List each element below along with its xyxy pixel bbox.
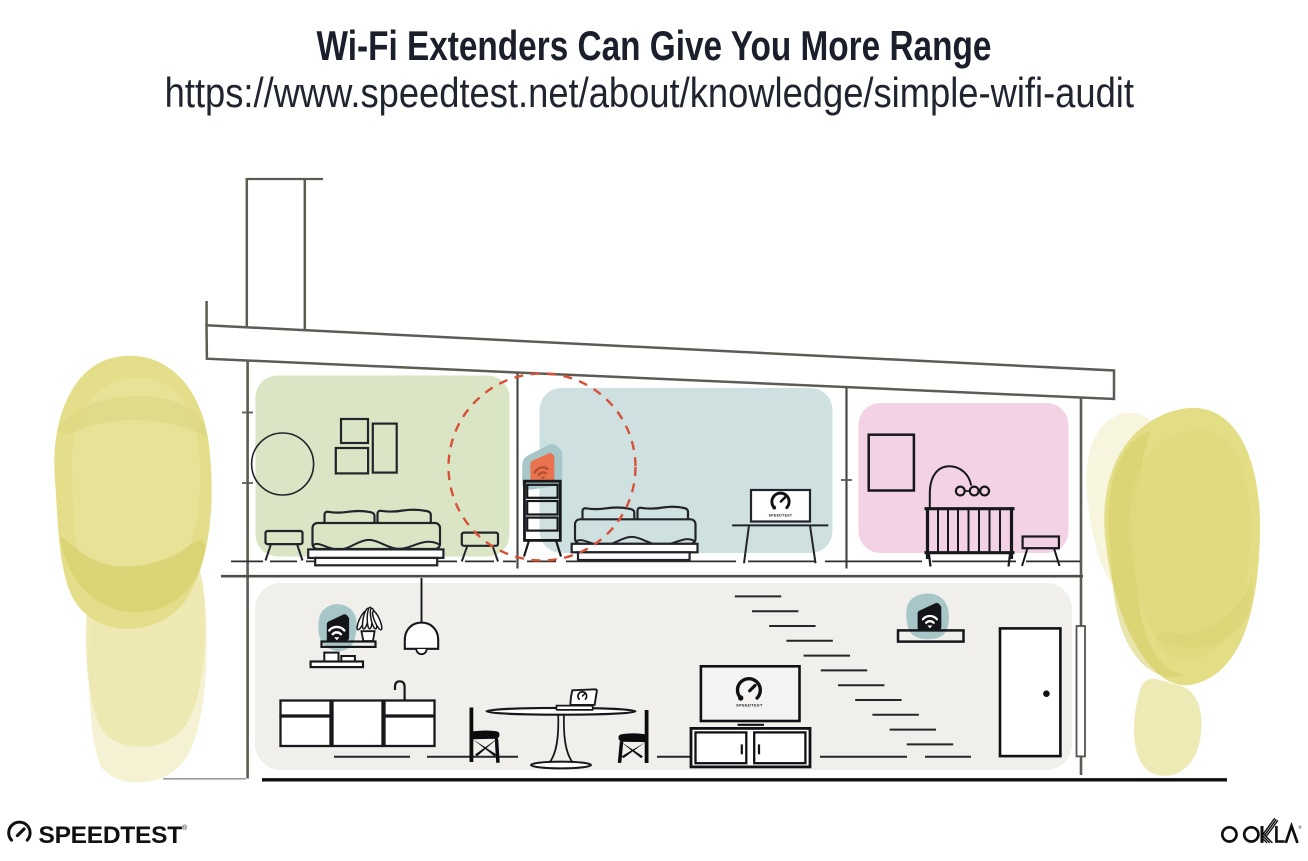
svg-text:®: ® [182,824,188,832]
svg-text:SPEEDTEST: SPEEDTEST [769,514,793,518]
svg-text:SPEEDTEST: SPEEDTEST [39,822,183,849]
svg-text:®: ® [1298,824,1302,830]
svg-text:SPEEDTEST: SPEEDTEST [736,704,763,708]
